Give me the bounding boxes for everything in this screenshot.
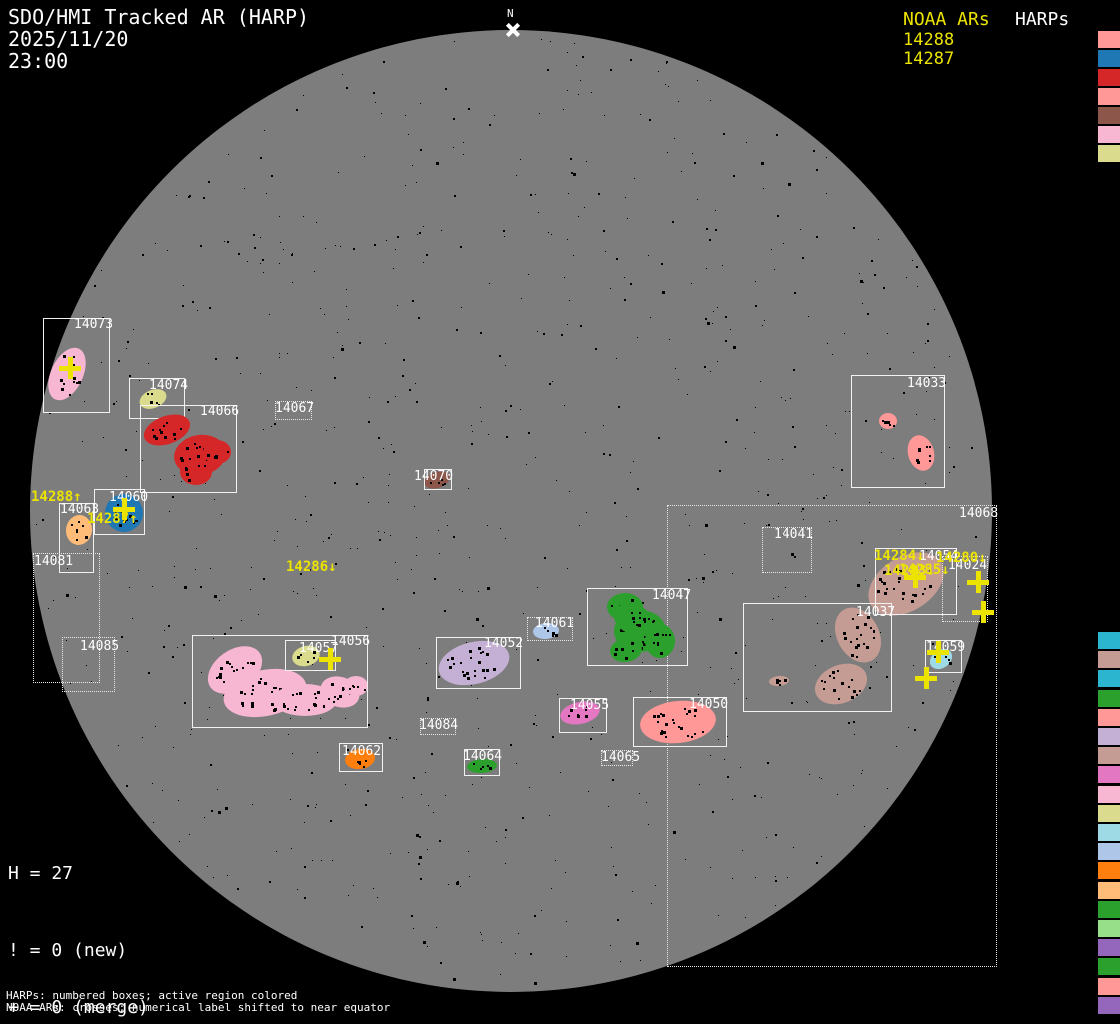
speck <box>523 613 524 614</box>
speck <box>258 614 259 615</box>
speck <box>269 881 271 883</box>
speck <box>666 63 667 64</box>
speck <box>530 953 532 955</box>
speck <box>252 804 253 805</box>
speck <box>462 591 463 592</box>
speck <box>710 100 711 101</box>
speck <box>736 419 738 421</box>
speck <box>244 188 245 189</box>
speck <box>292 253 293 254</box>
speck <box>717 361 718 362</box>
speck <box>585 432 586 433</box>
speck <box>826 495 827 496</box>
speck <box>433 812 434 813</box>
speck <box>390 535 391 536</box>
speck <box>640 960 641 961</box>
harp-color-swatch <box>1098 31 1120 48</box>
speck <box>725 340 727 342</box>
speck <box>650 317 651 318</box>
speck <box>503 230 505 232</box>
speck <box>626 516 627 517</box>
speck <box>949 356 950 357</box>
speck <box>576 65 577 66</box>
speck <box>438 530 439 531</box>
speck <box>472 431 473 432</box>
speck <box>719 470 721 472</box>
speck <box>541 910 542 911</box>
speck <box>195 569 196 570</box>
speck <box>439 840 441 842</box>
harp-label-14050: 14050 <box>689 698 728 711</box>
speck <box>264 735 265 736</box>
speck <box>426 663 427 664</box>
speck <box>230 627 232 629</box>
harp-color-swatch <box>1098 69 1120 86</box>
speck <box>403 359 405 361</box>
speck <box>841 485 842 486</box>
noaa-cross-icon <box>967 571 989 593</box>
speck <box>317 752 318 753</box>
speck <box>172 496 174 498</box>
harp-label-14067: 14067 <box>275 402 314 415</box>
harp-color-swatch <box>1098 920 1120 937</box>
speck <box>862 303 863 304</box>
speck <box>552 736 554 738</box>
speck <box>236 357 238 359</box>
speck <box>176 195 177 196</box>
speck <box>648 824 649 825</box>
speck <box>218 811 221 814</box>
page-title: SDO/HMI Tracked AR (HARP) <box>8 5 309 29</box>
harp-color-swatch <box>1098 901 1120 918</box>
harp-label-14073: 14073 <box>74 318 113 331</box>
speck <box>764 320 765 321</box>
speck <box>42 519 44 521</box>
speck <box>121 636 123 638</box>
speck <box>867 313 869 315</box>
speck <box>725 316 727 318</box>
speck <box>697 199 698 200</box>
speck <box>573 173 576 176</box>
speck <box>630 567 631 568</box>
speck <box>453 118 455 120</box>
speck <box>621 567 622 568</box>
speck <box>214 499 215 500</box>
legend-row-new: ! = 0 (new) <box>8 941 214 960</box>
speck <box>178 800 179 801</box>
speck <box>333 357 334 358</box>
speck <box>421 794 422 795</box>
speck <box>681 171 682 172</box>
speck <box>472 784 473 785</box>
speck <box>487 525 488 526</box>
speck <box>611 847 612 848</box>
speck <box>183 644 185 646</box>
speck <box>648 255 649 256</box>
speck <box>118 745 119 746</box>
speck <box>794 446 796 448</box>
speck <box>367 790 369 792</box>
speck <box>296 109 298 111</box>
speck <box>595 348 597 350</box>
harp-count: H = 27 <box>8 864 214 883</box>
speck <box>184 586 187 589</box>
speck <box>454 195 456 197</box>
harp-label-14085: 14085 <box>80 640 119 653</box>
speck <box>416 182 417 183</box>
speck <box>283 249 284 250</box>
speck <box>164 630 165 631</box>
speck <box>669 339 670 340</box>
harp-label-14068: 14068 <box>959 507 998 520</box>
speck <box>320 308 321 309</box>
speck <box>476 619 477 620</box>
speck <box>260 237 261 238</box>
speck <box>615 874 617 876</box>
speck <box>416 834 419 837</box>
speck <box>113 403 115 405</box>
speck <box>395 396 396 397</box>
speck <box>537 659 539 661</box>
speck <box>506 436 508 438</box>
speck <box>471 425 472 426</box>
speck <box>658 71 659 72</box>
speck <box>188 196 190 198</box>
speck <box>142 737 143 738</box>
speck <box>210 568 211 569</box>
speck <box>567 324 568 325</box>
speck <box>126 785 128 787</box>
speck <box>860 280 863 283</box>
speck <box>291 254 293 256</box>
speck <box>488 434 489 435</box>
speck <box>385 343 386 344</box>
speck <box>482 940 483 941</box>
speck <box>827 343 828 344</box>
speck <box>368 502 369 503</box>
speck <box>537 331 538 332</box>
speck <box>267 400 268 401</box>
speck <box>704 366 706 368</box>
speck <box>678 379 679 380</box>
speck <box>390 853 391 854</box>
speck <box>413 592 415 594</box>
speck <box>414 506 415 507</box>
speck <box>609 454 611 456</box>
speck <box>598 193 600 195</box>
noaa-disk-label: 14284↓ <box>874 549 925 563</box>
time-label: 23:00 <box>8 49 68 73</box>
speck <box>603 453 605 455</box>
speck <box>835 433 836 434</box>
speck <box>579 613 581 615</box>
speck <box>453 978 456 981</box>
speck <box>411 915 413 917</box>
harp-color-swatch <box>1098 958 1120 975</box>
speck <box>295 519 296 520</box>
speck <box>661 263 663 265</box>
harp-color-swatch <box>1098 709 1120 726</box>
speck <box>260 373 261 374</box>
speck <box>419 232 421 234</box>
speck <box>174 577 175 578</box>
speck <box>428 805 429 806</box>
speck <box>174 566 175 567</box>
speck <box>395 249 396 250</box>
speck <box>746 142 747 143</box>
harp-color-swatch <box>1098 728 1120 745</box>
speck <box>480 407 481 408</box>
speck <box>637 337 638 338</box>
harp-label-14033: 14033 <box>907 377 946 390</box>
speck <box>313 588 314 589</box>
speck <box>496 841 497 842</box>
noaa-ars-header: NOAA ARs <box>903 11 990 29</box>
speck <box>500 528 501 529</box>
speck <box>613 866 614 867</box>
speck <box>568 193 569 194</box>
speck <box>610 69 612 71</box>
speck <box>813 150 815 152</box>
harp-label-14062: 14062 <box>342 745 381 758</box>
speck <box>616 549 618 551</box>
speck <box>574 43 575 44</box>
speck <box>539 113 540 114</box>
speck <box>441 427 442 428</box>
speck <box>777 215 779 217</box>
speck <box>279 357 280 358</box>
speck <box>715 210 716 211</box>
speck <box>182 305 184 307</box>
speck <box>535 715 536 716</box>
speck <box>368 724 370 726</box>
speck <box>441 230 442 231</box>
speck <box>658 437 660 439</box>
speck <box>468 108 470 110</box>
speck <box>253 234 255 236</box>
noaa-cross-icon <box>59 357 81 379</box>
speck <box>578 94 579 95</box>
speck <box>126 476 127 477</box>
speck <box>662 291 665 294</box>
speck <box>393 268 394 269</box>
speck <box>413 928 414 929</box>
speck <box>335 245 336 246</box>
noaa-top-item: 14287 <box>903 50 954 68</box>
speck <box>808 316 809 317</box>
speck <box>163 646 165 648</box>
speck <box>526 464 527 465</box>
speck <box>505 365 506 366</box>
harp-label-14074: 14074 <box>149 379 188 392</box>
speck <box>386 240 387 241</box>
speck <box>844 333 845 334</box>
speck <box>228 154 229 155</box>
speck <box>634 178 635 179</box>
speck <box>94 285 96 287</box>
speck <box>469 876 470 877</box>
speck <box>563 109 564 110</box>
speck <box>790 398 791 399</box>
speck <box>402 797 403 798</box>
speck <box>423 226 424 227</box>
speck <box>678 101 679 102</box>
speck <box>516 175 517 176</box>
speck <box>551 234 552 235</box>
speck <box>826 157 827 158</box>
speck <box>717 307 718 308</box>
speck <box>650 691 651 692</box>
speck <box>504 236 505 237</box>
speck <box>505 829 507 831</box>
speck <box>184 702 186 704</box>
speck <box>515 953 516 954</box>
speck <box>522 817 524 819</box>
speck <box>520 409 521 410</box>
speck <box>488 746 489 747</box>
speck <box>561 334 563 336</box>
speck <box>713 311 714 312</box>
speck <box>259 470 261 472</box>
speck <box>913 352 914 353</box>
speck <box>781 397 782 398</box>
speck <box>706 268 707 269</box>
speck <box>755 407 756 408</box>
speck <box>409 389 411 391</box>
speck <box>304 866 306 868</box>
speck <box>588 791 589 792</box>
speck <box>279 216 280 217</box>
speck <box>723 133 725 135</box>
speck <box>447 525 448 526</box>
speck <box>533 723 535 725</box>
speck <box>383 448 384 449</box>
speck <box>485 827 486 828</box>
speck <box>712 323 713 324</box>
speck <box>346 289 347 290</box>
speck <box>444 610 446 612</box>
speck <box>448 884 449 885</box>
speck <box>616 258 618 260</box>
speck <box>324 314 325 315</box>
speck <box>395 562 396 563</box>
speck <box>917 286 918 287</box>
speck <box>668 86 669 87</box>
speck <box>402 375 404 377</box>
speck <box>269 314 270 315</box>
speck <box>826 425 827 426</box>
speck <box>429 494 430 495</box>
speck <box>162 790 163 791</box>
speck <box>408 134 409 135</box>
speck <box>311 772 313 774</box>
speck <box>591 92 592 93</box>
speck <box>214 595 217 598</box>
speck <box>849 411 850 412</box>
speck <box>560 772 561 773</box>
speck <box>841 469 843 471</box>
speck <box>310 514 312 516</box>
speck <box>419 856 422 859</box>
speck <box>691 283 692 284</box>
speck <box>534 982 537 985</box>
speck <box>345 784 346 785</box>
speck <box>169 511 170 512</box>
speck <box>453 536 455 538</box>
speck <box>241 620 242 621</box>
speck <box>190 734 191 735</box>
speck <box>889 368 891 370</box>
speck <box>427 849 428 850</box>
speck <box>138 570 139 571</box>
speck <box>883 287 885 289</box>
harp-color-swatch <box>1098 145 1120 162</box>
speck <box>816 169 818 171</box>
speck <box>549 383 551 385</box>
speck <box>710 371 711 372</box>
noaa-disk-label: 14287↑ <box>87 512 138 526</box>
speck <box>778 503 779 504</box>
speck <box>325 248 326 249</box>
speck <box>667 152 668 153</box>
harp-label-14055: 14055 <box>570 699 609 712</box>
speck <box>211 810 213 812</box>
speck <box>618 406 620 408</box>
speck <box>487 587 490 590</box>
harp-color-swatch <box>1098 978 1120 995</box>
harp-box-14033 <box>851 375 945 488</box>
speck <box>321 860 322 861</box>
harp-color-swatch <box>1098 632 1120 649</box>
speck <box>388 502 389 503</box>
speck <box>582 56 584 58</box>
speck <box>280 242 281 243</box>
speck <box>832 354 833 355</box>
speck <box>505 538 506 539</box>
speck <box>586 161 587 162</box>
speck <box>516 763 517 764</box>
speck <box>271 175 273 177</box>
speck <box>590 738 592 740</box>
speck <box>535 457 536 458</box>
speck <box>646 802 647 803</box>
speck <box>377 897 378 898</box>
speck <box>906 277 907 278</box>
speck <box>209 307 211 309</box>
speck <box>263 578 265 580</box>
speck <box>217 789 218 790</box>
speck <box>614 502 616 504</box>
speck <box>601 734 602 735</box>
speck <box>630 472 631 473</box>
speck <box>374 244 376 246</box>
speck <box>314 271 315 272</box>
speck <box>548 232 549 233</box>
speck <box>276 851 277 852</box>
speck <box>348 895 349 896</box>
speck <box>489 283 490 284</box>
speck <box>393 451 395 453</box>
speck <box>564 277 565 278</box>
speck <box>397 236 399 238</box>
speck <box>191 729 192 730</box>
speck <box>733 175 735 177</box>
speck <box>357 548 358 549</box>
speck <box>758 491 759 492</box>
speck <box>155 726 156 727</box>
speck <box>330 820 332 822</box>
speck <box>368 421 370 423</box>
